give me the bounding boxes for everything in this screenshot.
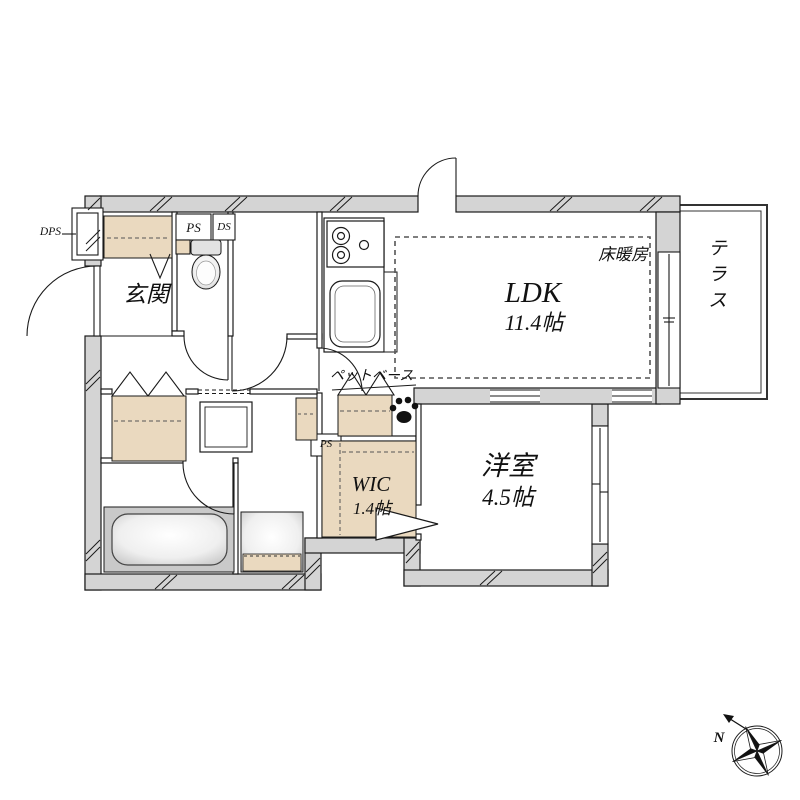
sink-icon — [330, 281, 380, 347]
dps-label: DPS — [28, 227, 61, 239]
floor-heating-label: 床暖房 — [585, 247, 661, 264]
ds-top-label: DS — [213, 222, 235, 233]
washer-pan — [200, 402, 252, 452]
bathtub-icon — [104, 507, 234, 572]
toilet-icon — [191, 240, 221, 289]
entrance-label: 玄関 — [108, 283, 184, 306]
floor-plan-drawing — [0, 0, 800, 800]
linen-closet — [112, 372, 186, 461]
ps-top-label: PS — [176, 221, 211, 234]
ldk-size-label: 11.4帖 — [480, 312, 588, 334]
toilet-door — [184, 336, 228, 380]
north-arrow — [723, 714, 734, 723]
top-door — [418, 158, 456, 196]
ps-mid-label: PS — [311, 439, 341, 450]
entrance-door — [94, 266, 100, 336]
hall-ldk-door — [232, 336, 287, 391]
terrace-label: テラス — [706, 238, 725, 316]
wic-label: WIC — [330, 474, 412, 495]
shoe-cabinet — [104, 216, 172, 278]
ldk-label: LDK — [483, 279, 583, 308]
north-label: N — [705, 731, 733, 746]
floor-plan: DPS PS DS 玄関 LDK 11.4帖 床暖房 テラス ペットベース 洋室… — [0, 0, 800, 800]
pet-base-label: ペットベース — [330, 370, 413, 384]
kitchen-counter — [324, 218, 397, 352]
vanity-icon — [241, 512, 303, 572]
wic-size-label: 1.4帖 — [332, 500, 412, 517]
western-room-label: 洋室 — [455, 453, 561, 480]
hall-cabinet — [296, 398, 317, 440]
western-room-size-label: 4.5帖 — [453, 486, 563, 509]
bath-door — [183, 463, 234, 514]
